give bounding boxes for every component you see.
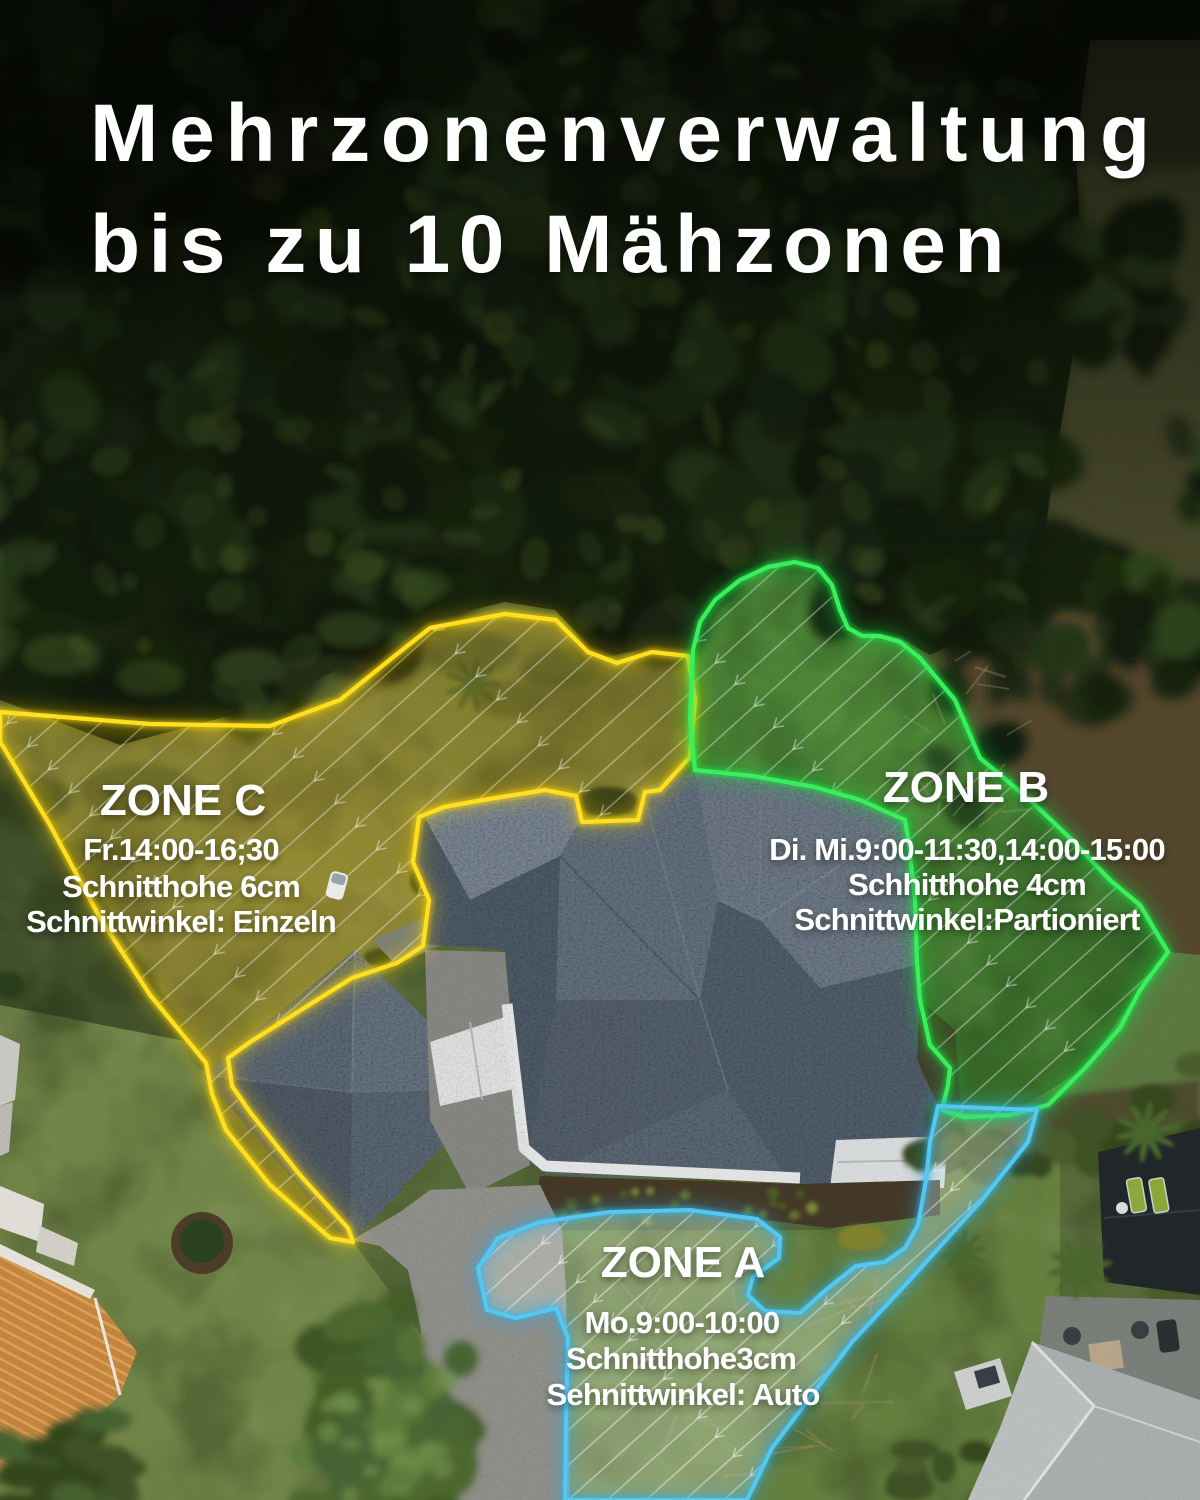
svg-text:ZONE A: ZONE A	[601, 1238, 766, 1287]
svg-text:Schnittwinkel:Partioniert: Schnittwinkel:Partioniert	[794, 902, 1140, 937]
svg-text:bis zu 10 Mähzonen: bis zu 10 Mähzonen	[90, 199, 1013, 290]
svg-text:ZONE B: ZONE B	[883, 763, 1049, 812]
svg-text:ZONE C: ZONE C	[100, 776, 266, 825]
svg-text:Mehrzonenverwaltung: Mehrzonenverwaltung	[90, 88, 1161, 179]
svg-text:Sehnittwinkel: Auto: Sehnittwinkel: Auto	[547, 1377, 820, 1412]
svg-text:Schnitthohe 6cm: Schnitthohe 6cm	[62, 869, 300, 904]
svg-text:Fr.14:00-16;30: Fr.14:00-16;30	[83, 832, 279, 867]
svg-text:Schhitthohe 4cm: Schhitthohe 4cm	[848, 867, 1086, 902]
svg-text:Schnittwinkel: Einzeln: Schnittwinkel: Einzeln	[26, 904, 336, 939]
svg-text:Schnitthohe3cm: Schnitthohe3cm	[566, 1341, 796, 1376]
svg-text:Di. Mi.9:00-11:30,14:00-15:00: Di. Mi.9:00-11:30,14:00-15:00	[769, 832, 1165, 867]
svg-text:Mo.9:00-10:00: Mo.9:00-10:00	[585, 1305, 780, 1340]
